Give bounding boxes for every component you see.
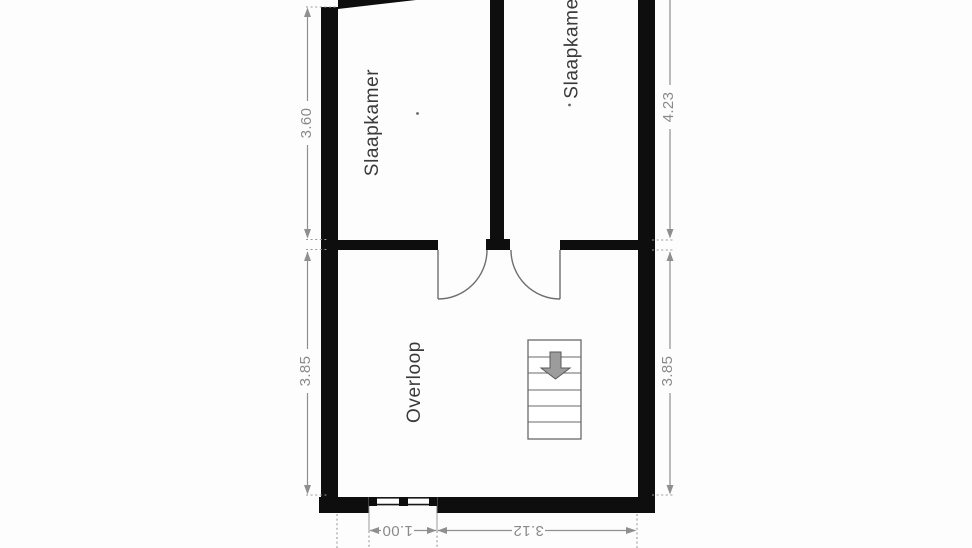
floor-plan-drawing: 3.60 3.85 4.23 3.85 — [0, 0, 972, 548]
door-right-swing-arc — [511, 250, 560, 299]
dimension-label-right-top: 4.23 — [660, 92, 677, 123]
window-bottom — [369, 497, 437, 513]
wall-middle-left — [338, 240, 438, 250]
room-label-overloop: Overloop — [404, 341, 425, 423]
wall-top-clipped — [338, 0, 416, 9]
doors — [438, 250, 560, 299]
wall-middle-stub — [486, 239, 510, 250]
wall-bottom-right — [437, 497, 655, 513]
dimension-right-bottom: 3.85 — [652, 250, 677, 495]
door-left-swing-arc — [438, 250, 487, 299]
room-label-slaapkamer-left: Slaapkamer — [362, 69, 383, 176]
wall-right — [638, 0, 655, 513]
point-marker — [568, 104, 571, 107]
dimension-label-bottom-right: 3.12 — [513, 522, 544, 539]
floor-plan: 3.60 3.85 4.23 3.85 — [0, 0, 972, 548]
window-post-left — [369, 497, 377, 506]
dimension-label-left-bottom: 3.85 — [297, 356, 314, 387]
staircase — [528, 340, 581, 439]
wall-left — [321, 7, 338, 513]
wall-middle-right — [560, 240, 638, 250]
dimension-right-top: 4.23 — [652, 0, 678, 240]
wall-bottom-left — [319, 497, 369, 513]
dimension-bottom-right: 3.12 — [437, 513, 637, 548]
dimension-label-left-top: 3.60 — [298, 108, 315, 139]
wall-divider-bedrooms — [490, 0, 504, 240]
room-label-slaapkamer-right: Slaapkamer — [562, 0, 583, 99]
window-post-right — [429, 497, 437, 506]
point-marker — [416, 112, 419, 115]
dimension-label-bottom-window: 1.00 — [382, 522, 413, 539]
dimension-label-right-bottom: 3.85 — [659, 356, 676, 387]
window-post-center — [399, 497, 408, 506]
